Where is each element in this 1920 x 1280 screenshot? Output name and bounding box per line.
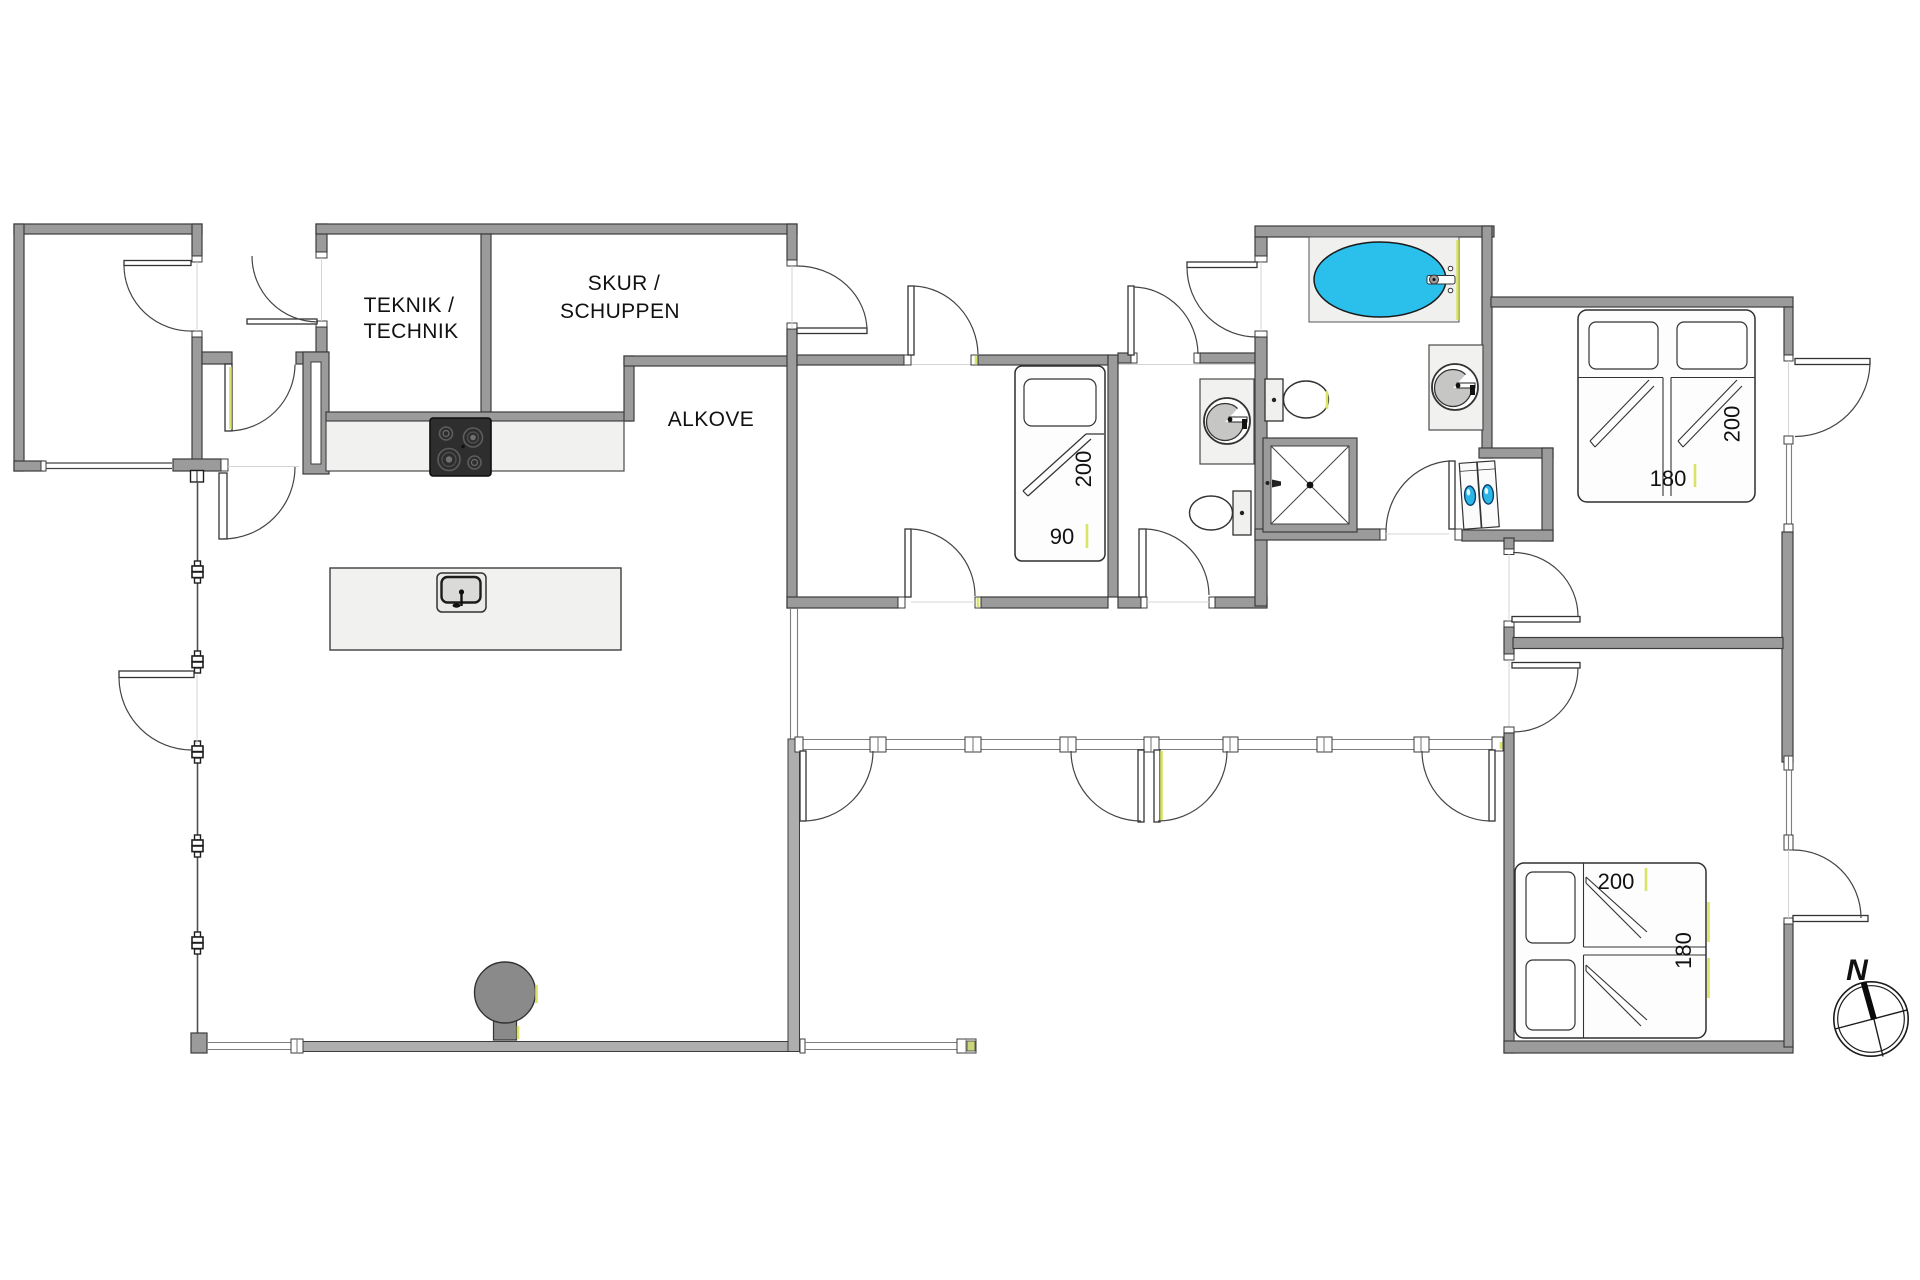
- svg-text:180: 180: [1671, 932, 1696, 969]
- svg-text:180: 180: [1650, 466, 1687, 491]
- svg-text:N: N: [1846, 954, 1869, 987]
- svg-text:200: 200: [1071, 451, 1096, 488]
- svg-text:200: 200: [1720, 406, 1745, 443]
- svg-text:90: 90: [1050, 524, 1074, 549]
- svg-text:ALKOVE: ALKOVE: [668, 408, 754, 431]
- svg-text:TEKNIK /: TEKNIK /: [364, 294, 455, 317]
- svg-text:SCHUPPEN: SCHUPPEN: [560, 300, 680, 323]
- svg-text:TECHNIK: TECHNIK: [364, 320, 459, 343]
- svg-text:200: 200: [1598, 869, 1635, 894]
- svg-text:SKUR /: SKUR /: [588, 272, 660, 295]
